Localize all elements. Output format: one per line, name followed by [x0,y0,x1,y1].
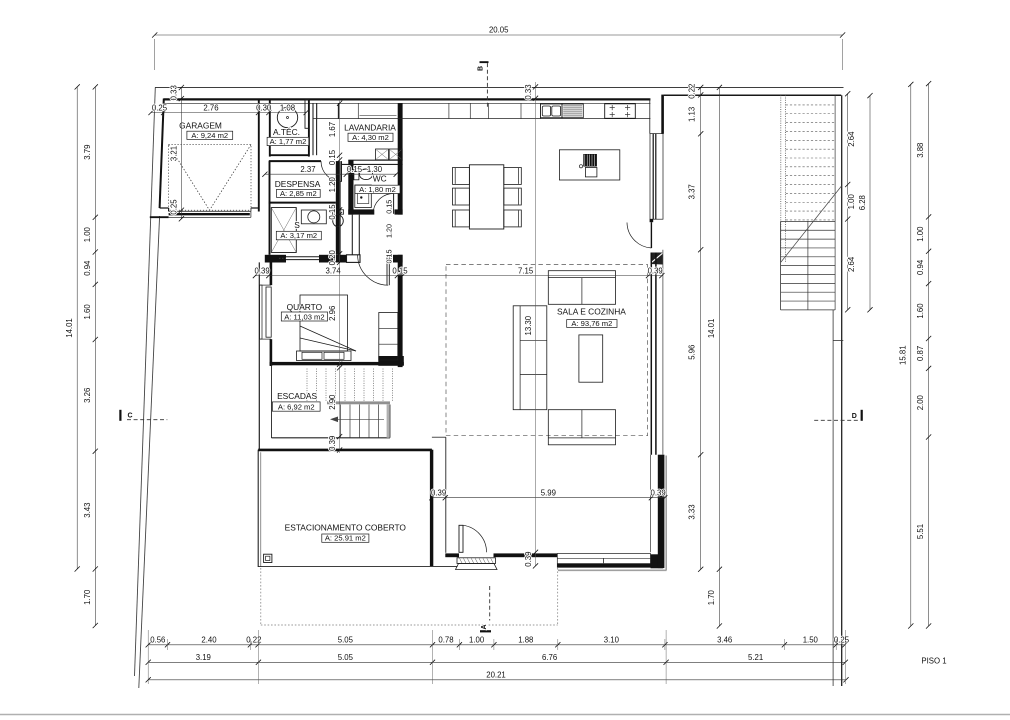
svg-text:5.21: 5.21 [748,653,763,662]
svg-text:WC: WC [373,174,387,184]
svg-text:A: A [481,624,488,629]
svg-text:0.15: 0.15 [385,250,394,264]
svg-text:0.39: 0.39 [524,552,533,567]
svg-text:0.15: 0.15 [385,200,394,214]
svg-text:0.39: 0.39 [648,266,663,275]
svg-text:2.64: 2.64 [847,131,856,147]
svg-text:1.00: 1.00 [916,226,925,242]
svg-text:S: S [294,220,300,230]
svg-text:2.37: 2.37 [300,165,315,174]
svg-text:A: 1,80 m2: A: 1,80 m2 [359,185,396,194]
svg-text:B: B [477,66,484,71]
svg-text:0.20: 0.20 [328,250,337,266]
svg-text:3.21: 3.21 [170,146,179,161]
svg-text:3.79: 3.79 [83,145,92,160]
svg-text:7.15: 7.15 [518,266,534,275]
svg-text:0.15: 0.15 [328,149,337,165]
svg-text:1.13: 1.13 [687,107,696,122]
svg-text:5.96: 5.96 [687,345,696,360]
svg-text:DESPENSA: DESPENSA [275,179,321,189]
svg-text:GARAGEM: GARAGEM [179,120,222,130]
svg-text:3.46: 3.46 [717,636,732,645]
svg-text:A: 6,92 m2: A: 6,92 m2 [278,403,315,412]
svg-text:2.40: 2.40 [201,636,217,645]
svg-text:5.99: 5.99 [541,489,556,498]
svg-text:5.05: 5.05 [338,636,354,645]
svg-text:13.30: 13.30 [524,315,533,335]
svg-text:6.76: 6.76 [542,653,557,662]
svg-text:1.60: 1.60 [916,303,925,319]
svg-text:3.74: 3.74 [326,266,342,275]
svg-text:6.28: 6.28 [858,195,867,210]
svg-text:1.70: 1.70 [83,589,92,605]
svg-text:1.70: 1.70 [707,589,716,605]
svg-text:0.78: 0.78 [438,636,453,645]
svg-text:A: 25.91 m2: A: 25.91 m2 [325,534,366,543]
svg-text:0.15: 0.15 [347,165,363,174]
svg-text:3.26: 3.26 [83,388,92,403]
svg-text:14.01: 14.01 [65,318,74,338]
svg-text:C: C [128,412,133,419]
svg-text:SALA E COZINHA: SALA E COZINHA [557,307,626,317]
svg-text:15.81: 15.81 [899,345,908,365]
svg-text:0.56: 0.56 [150,636,165,645]
svg-text:3.88: 3.88 [916,143,925,158]
svg-text:A.TÉC.: A.TÉC. [273,127,300,137]
svg-text:0.15: 0.15 [392,266,408,275]
svg-text:1.20: 1.20 [328,177,337,193]
svg-text:3.10: 3.10 [604,636,620,645]
svg-text:0.39: 0.39 [328,436,337,451]
svg-text:0.87: 0.87 [916,346,925,361]
svg-text:3.43: 3.43 [83,503,92,518]
svg-text:1.88: 1.88 [518,636,533,645]
svg-text:3.37: 3.37 [687,184,696,199]
svg-text:A: 4,30 m2: A: 4,30 m2 [352,133,389,142]
svg-text:2.64: 2.64 [847,256,856,272]
svg-text:0.22: 0.22 [246,636,261,645]
svg-text:0.39: 0.39 [255,266,270,275]
svg-text:1.00: 1.00 [83,226,92,242]
svg-text:A: 3,17 m2: A: 3,17 m2 [280,231,317,240]
svg-text:0.30: 0.30 [256,103,272,112]
svg-text:1.20: 1.20 [385,224,394,238]
svg-text:D: D [852,413,857,420]
svg-text:5.51: 5.51 [916,524,925,539]
svg-text:ESTACIONAMENTO COBERTO: ESTACIONAMENTO COBERTO [285,522,407,532]
svg-text:PISO 1: PISO 1 [921,657,946,666]
svg-text:1.67: 1.67 [328,122,337,137]
svg-text:2.96: 2.96 [328,306,337,321]
svg-text:A: 2,85 m2: A: 2,85 m2 [280,189,317,198]
svg-text:0.25: 0.25 [170,199,179,215]
svg-text:2.00: 2.00 [916,394,925,410]
svg-text:0.94: 0.94 [83,260,92,276]
svg-text:0.22: 0.22 [687,84,696,99]
svg-text:ESCADAS: ESCADAS [277,391,317,401]
svg-text:1.08: 1.08 [280,103,295,112]
svg-text:0.15: 0.15 [328,204,337,220]
svg-text:0.33: 0.33 [524,84,533,99]
svg-text:1.50: 1.50 [803,636,819,645]
svg-text:A: 9,24 m2: A: 9,24 m2 [191,131,228,140]
svg-text:5.05: 5.05 [338,653,354,662]
svg-text:3.33: 3.33 [687,504,696,519]
svg-text:20.05: 20.05 [489,25,509,34]
svg-text:A: 1,77 m2: A: 1,77 m2 [270,137,307,146]
svg-text:QUARTO: QUARTO [287,302,323,312]
svg-text:0.25: 0.25 [152,103,168,112]
svg-text:0.39: 0.39 [651,489,666,498]
svg-text:A: 93,76 m2: A: 93,76 m2 [571,319,612,328]
svg-text:LAVANDARIA: LAVANDARIA [344,123,396,133]
svg-text:2.90: 2.90 [328,394,337,410]
svg-text:0.94: 0.94 [916,259,925,275]
svg-text:1.60: 1.60 [83,304,92,320]
svg-text:0.33: 0.33 [170,85,179,100]
svg-text:A: 11,03 m2: A: 11,03 m2 [284,312,324,321]
svg-text:1.30: 1.30 [367,165,383,174]
svg-text:1.00: 1.00 [469,636,485,645]
svg-text:20.21: 20.21 [486,671,506,680]
svg-text:2.76: 2.76 [203,103,218,112]
svg-text:14.01: 14.01 [707,319,716,339]
svg-text:1.00: 1.00 [847,194,856,210]
svg-text:0.39: 0.39 [431,489,446,498]
svg-text:3.19: 3.19 [196,653,211,662]
